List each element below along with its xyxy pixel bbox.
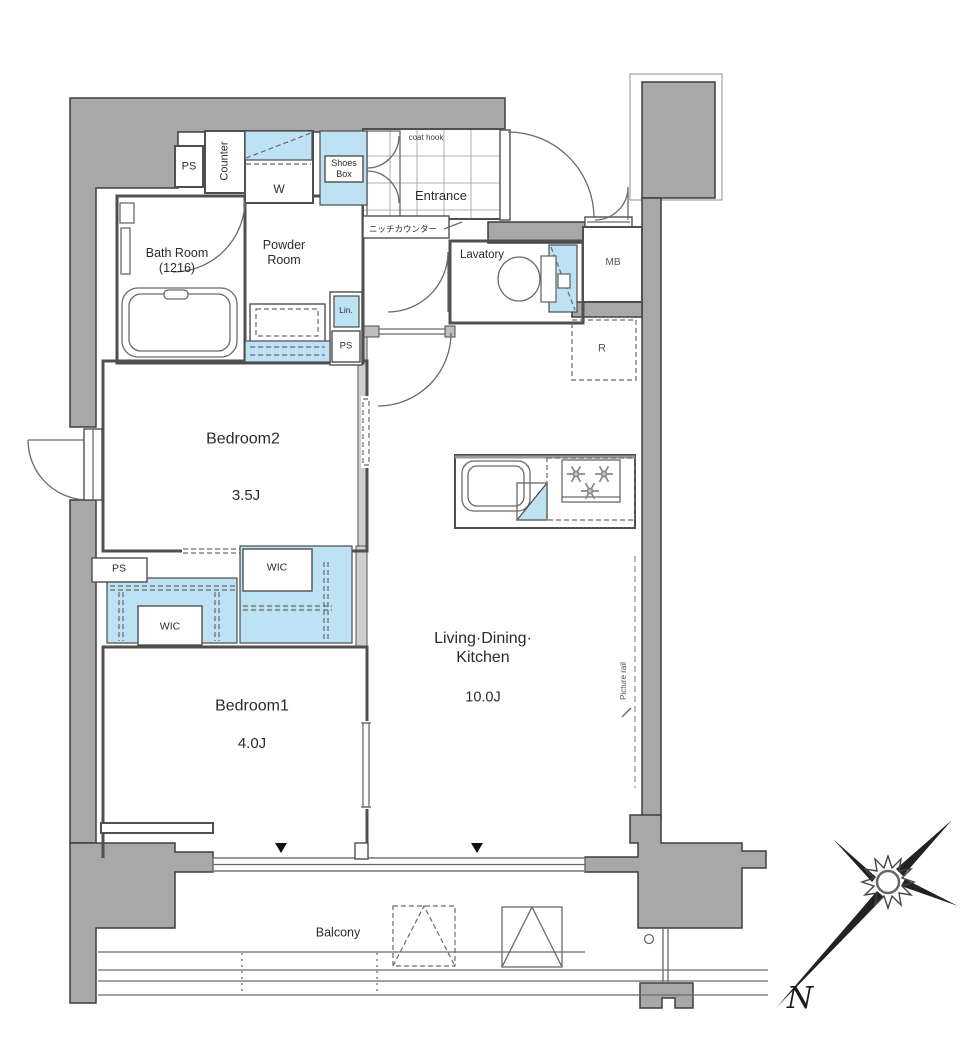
bathroom-label: Bath Room (1216) [146,246,209,276]
refrigerator-label: R [598,342,606,355]
wall-bottom-left [70,843,213,1003]
bedroom2-label: Bedroom2 [206,429,280,448]
ldk-line1: Living·Dining· [434,629,532,648]
toilet-control-icon [558,274,570,288]
bedroom2-area-label: 3.5J [232,487,260,505]
wic-right-label: WIC [267,562,287,575]
left-window-arc [28,440,88,500]
entrance-label: Entrance [415,188,467,204]
compass-icon [776,820,958,1008]
floor-plan: PS Counter W Shoes Box coat hook Entranc… [0,0,960,1038]
kitchen [455,320,636,528]
bedroom1-label: Bedroom1 [215,696,289,715]
bathtub-ledge [164,290,188,299]
ldk-door-sill [379,329,445,334]
wall-left-lower [70,500,96,843]
bedroom2-walls [103,361,367,551]
mb-door-arc [595,187,628,220]
hall-wall-a [363,326,379,337]
wall-bottom-right [585,815,766,928]
b1-bottom-wall [101,823,213,833]
ldk-line2: Kitchen [434,648,532,667]
wic-left-label: WIC [160,621,180,634]
powder-room-label: Powder Room [263,238,305,268]
bathroom-size: (1216) [146,261,209,276]
window-post [355,843,368,859]
linen-label: Lin. [339,305,353,315]
ldk-area-label: 10.0J [465,689,500,706]
shoes-line2: Box [331,169,357,180]
powder-line1: Powder [263,238,305,253]
toilet-icon [498,257,540,301]
washer-label: W [273,182,284,196]
balcony-dividers [242,953,377,995]
window-marker-icon [275,843,287,853]
pillar-top-right [642,82,715,198]
window-marker-icon [471,843,483,853]
niche-counter-label: ニッチカウンター [369,224,437,234]
ps-left-label: PS [112,563,126,576]
wall-right [642,198,661,820]
north-label: N [787,981,813,1017]
shoes-line1: Shoes [331,158,357,169]
hall-door-arc [388,252,448,312]
balcony-hatch-tri [502,907,562,967]
drain-cap-icon [645,935,654,944]
toilet-tank-icon [541,256,556,302]
compass-ring [877,871,899,893]
drain-pipe [663,928,668,983]
b1-sliding-door [363,723,369,807]
counter-label: Counter [218,141,231,180]
washer-pan [245,341,330,362]
b2-closet-opening [182,546,243,556]
emergency-hatch-tri [393,906,455,966]
shoes-box-label: Shoes Box [331,158,357,180]
wall-wic-ldk [356,546,367,647]
ps-top-label: PS [182,160,197,173]
balcony-hatch-icon [502,907,562,967]
ldk-label: Living·Dining· Kitchen [434,629,532,667]
bath-counter-icon [120,203,134,223]
ps-mid-label: PS [340,340,353,351]
bedroom1-area-label: 4.0J [238,735,266,753]
picture-rail-label: Picture rail [619,662,629,700]
ldk-door-arc [378,333,451,406]
coat-hook-label: coat hook [409,133,444,143]
powder-line2: Room [263,253,305,268]
entry-jamb [500,130,510,220]
balcony-label: Balcony [316,926,360,941]
bath-shower-icon [121,228,130,274]
bathroom-name: Bath Room [146,246,209,261]
lavatory-label: Lavatory [460,249,504,263]
mb-label: MB [606,257,621,269]
hall-wall-b [445,326,455,337]
floor-plan-drawing [0,0,960,1038]
picture-rail-tick [622,708,631,717]
entrance-door-arc [508,132,594,218]
emergency-hatch-icon [393,906,455,966]
